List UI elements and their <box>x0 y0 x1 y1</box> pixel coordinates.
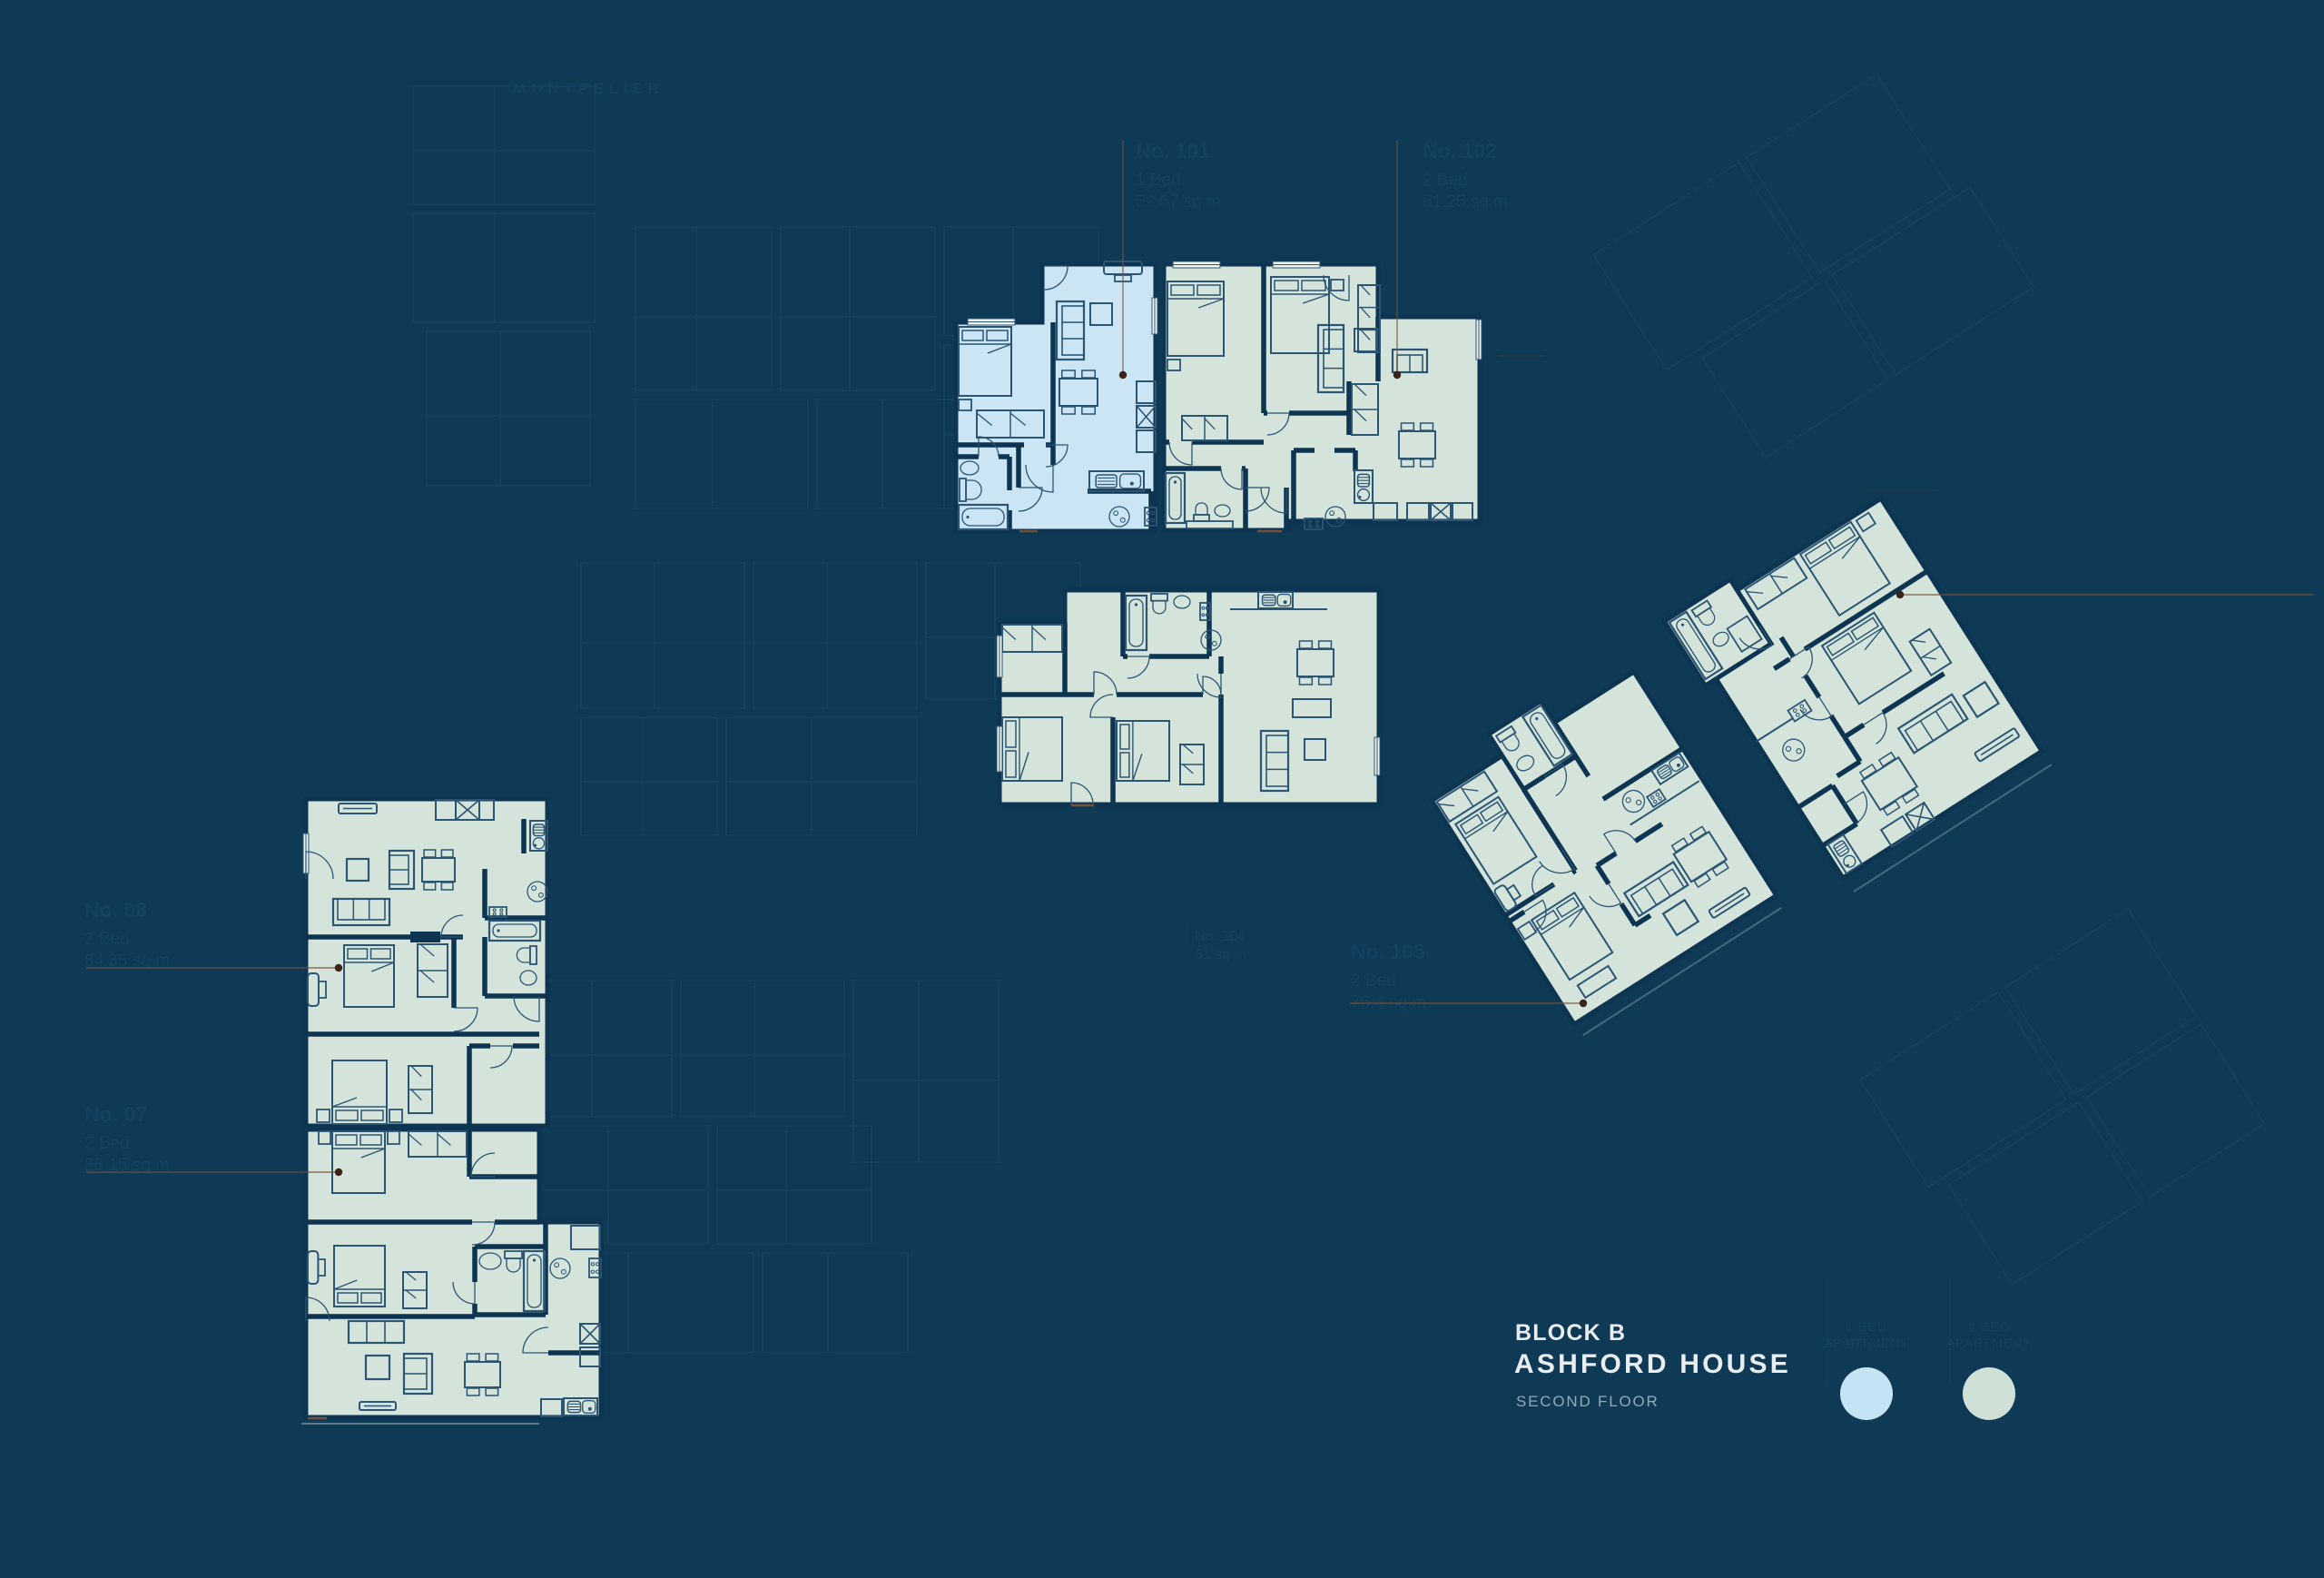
svg-text:No. 07: No. 07 <box>84 1102 147 1126</box>
svg-text:MONTPELIER: MONTPELIER <box>513 80 664 97</box>
svg-text:No. 102: No. 102 <box>1423 139 1497 163</box>
svg-text:No. 104: No. 104 <box>1195 929 1246 944</box>
svg-text:61 sq m: 61 sq m <box>1195 947 1246 962</box>
svg-text:APARTMENT: APARTMENT <box>1824 1336 1909 1350</box>
svg-text:BLOCK B: BLOCK B <box>1515 1320 1626 1346</box>
svg-text:61.25 sq m: 61.25 sq m <box>1423 192 1508 212</box>
svg-text:2 Bed: 2 Bed <box>84 1134 130 1153</box>
svg-text:No. 105: No. 105 <box>1351 940 1425 963</box>
svg-text:2 Bed: 2 Bed <box>1351 971 1396 991</box>
svg-text:2 Bed: 2 Bed <box>1423 171 1468 190</box>
svg-text:2 BED: 2 BED <box>1968 1319 2009 1334</box>
svg-text:52.57 sq m: 52.57 sq m <box>1136 192 1221 212</box>
svg-text:2 Bed: 2 Bed <box>84 930 130 949</box>
svg-text:SECOND FLOOR: SECOND FLOOR <box>1516 1393 1659 1410</box>
svg-text:1 Bed: 1 Bed <box>1136 171 1181 190</box>
svg-text:APARTMENT: APARTMENT <box>1946 1336 2032 1350</box>
svg-text:1 BED: 1 BED <box>1846 1319 1886 1334</box>
svg-text:No. 08: No. 08 <box>84 898 147 922</box>
svg-text:ASHFORD HOUSE: ASHFORD HOUSE <box>1514 1349 1791 1379</box>
svg-text:No. 101: No. 101 <box>1136 139 1210 163</box>
